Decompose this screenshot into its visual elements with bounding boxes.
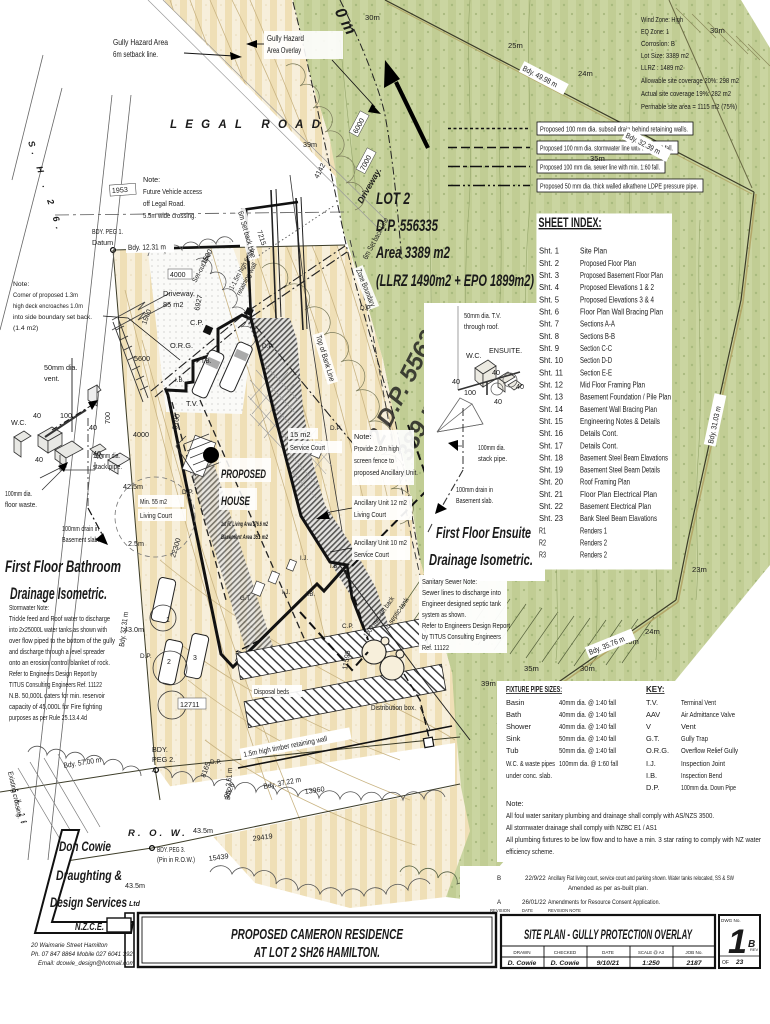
svg-text:Basement slab.: Basement slab. (62, 535, 99, 544)
svg-text:Actual site coverage 19%: 282: Actual site coverage 19%: 282 m2 (641, 89, 731, 98)
svg-text:BDY. PEG 3.: BDY. PEG 3. (157, 845, 185, 854)
svg-text:Basement Wall Bracing Plan: Basement Wall Bracing Plan (580, 405, 657, 414)
svg-text:43.0m: 43.0m (124, 625, 144, 634)
svg-text:W.C. & waste pipes: W.C. & waste pipes (506, 759, 555, 768)
svg-text:40mm dia. @ 1:40 fall: 40mm dia. @ 1:40 fall (559, 722, 616, 731)
svg-text:Refer to Engineers Design Repo: Refer to Engineers Design Report by (9, 671, 97, 678)
svg-text:23: 23 (735, 959, 744, 966)
svg-text:Gully Hazard: Gully Hazard (267, 34, 304, 43)
svg-text:50mm dia. @ 1:40 fall: 50mm dia. @ 1:40 fall (559, 746, 616, 755)
svg-text:9/10/21: 9/10/21 (597, 960, 620, 967)
svg-text:Stormwater Note:: Stormwater Note: (9, 605, 49, 612)
svg-text:into 2x25000L water tanks as s: into 2x25000L water tanks as shown with (9, 627, 107, 634)
svg-text:Sht. 14: Sht. 14 (539, 405, 564, 414)
svg-text:35m: 35m (590, 154, 605, 163)
svg-text:100mm dia.: 100mm dia. (478, 443, 505, 452)
svg-text:Sht. 16: Sht. 16 (539, 429, 564, 438)
svg-text:Sht. 18: Sht. 18 (539, 453, 564, 462)
svg-text:2: 2 (167, 659, 171, 666)
svg-text:Note:: Note: (506, 799, 524, 808)
svg-text:12711: 12711 (180, 700, 199, 709)
svg-text:O.R.G.: O.R.G. (170, 341, 193, 350)
svg-text:Amendments for Resource Consen: Amendments for Resource Consent Applicat… (548, 899, 660, 906)
svg-text:2.5m: 2.5m (128, 539, 144, 548)
svg-text:1: 1 (728, 923, 747, 961)
svg-text:50mm dia. T.V.: 50mm dia. T.V. (464, 311, 501, 320)
svg-text:50mm dia.: 50mm dia. (44, 363, 78, 372)
svg-text:N.Z.C.E.: N.Z.C.E. (75, 921, 104, 933)
svg-text:Provide 2.0m high: Provide 2.0m high (354, 444, 399, 453)
svg-text:Basement Foundation / Pile Pla: Basement Foundation / Pile Plan (580, 393, 671, 402)
svg-text:Proposed Elevations 1 & 2: Proposed Elevations 1 & 2 (580, 283, 654, 292)
svg-text:Bank Steel Beam Elavations: Bank Steel Beam Elavations (580, 514, 657, 523)
svg-text:Disposal beds: Disposal beds (254, 687, 289, 696)
svg-text:Basement Area 351 m2: Basement Area 351 m2 (221, 534, 268, 541)
svg-text:FIXTURE PIPE SIZES:: FIXTURE PIPE SIZES: (506, 685, 562, 694)
svg-text:high deck encroaches 1.0m: high deck encroaches 1.0m (13, 303, 83, 310)
svg-text:off Legal Road.: off Legal Road. (143, 199, 185, 208)
svg-text:Sht. 10: Sht. 10 (539, 356, 564, 365)
svg-text:Driveway.: Driveway. (163, 289, 195, 298)
svg-text:by TITUS Consulting Engineers: by TITUS Consulting Engineers (422, 634, 501, 641)
svg-text:Sections B-B: Sections B-B (580, 332, 615, 341)
svg-text:40mm dia. @ 1:40 fall: 40mm dia. @ 1:40 fall (559, 698, 616, 707)
svg-text:D.P.: D.P. (140, 653, 152, 660)
svg-text:Sht. 11: Sht. 11 (539, 368, 564, 377)
svg-text:REV: REV (750, 947, 759, 952)
svg-text:40: 40 (33, 411, 41, 420)
svg-text:Sht. 17: Sht. 17 (539, 441, 564, 450)
svg-text:KEY:: KEY: (646, 685, 665, 694)
svg-text:Sht. 7: Sht. 7 (539, 320, 560, 329)
svg-text:40: 40 (89, 423, 97, 432)
svg-text:Basement Steel Beam Elavations: Basement Steel Beam Elavations (580, 453, 668, 462)
svg-text:Ph. 07 847 8864 Mobile 02: Ph. 07 847 8864 Mobile 027 6041 392 (31, 952, 133, 958)
svg-text:Section E-E: Section E-E (580, 368, 612, 377)
svg-text:D.P.: D.P. (262, 343, 274, 350)
svg-text:24m: 24m (645, 627, 660, 636)
svg-text:Gully Trap: Gully Trap (681, 734, 708, 743)
svg-text:Vent: Vent (681, 722, 696, 731)
svg-text:D.P.: D.P. (360, 305, 372, 312)
svg-text:vent.: vent. (44, 374, 60, 383)
svg-text:Terminal Vent: Terminal Vent (681, 698, 716, 707)
svg-text:PROPOSED CAMERON RESIDENCE: PROPOSED CAMERON RESIDENCE (231, 926, 404, 943)
svg-text:HOUSE: HOUSE (221, 494, 251, 508)
svg-text:Roof Framing Plan: Roof Framing Plan (580, 478, 630, 487)
svg-text:Ancillary Flat living court, s: Ancillary Flat living court, service cou… (548, 875, 734, 882)
svg-text:1st Fl. Living Area 376.6 m2: 1st Fl. Living Area 376.6 m2 (221, 521, 268, 528)
svg-text:All plumbing fixtures to be lo: All plumbing fixtures to be low flow and… (506, 835, 761, 844)
svg-text:Allowable site coverage 20%: 2: Allowable site coverage 20%: 298 m2 (641, 76, 739, 85)
svg-text:Sht. 12: Sht. 12 (539, 381, 564, 390)
svg-text:AT LOT 2 SH26 HAMILTON.: AT LOT 2 SH26 HAMILTON. (253, 944, 380, 961)
svg-text:4000: 4000 (133, 430, 149, 439)
svg-text:43.5m: 43.5m (193, 826, 213, 835)
svg-text:AAV: AAV (646, 710, 660, 719)
svg-text:Details Cont.: Details Cont. (580, 429, 618, 438)
svg-text:Engineer designed septic tank: Engineer designed septic tank (422, 601, 501, 608)
svg-text:TITUS Consulting Engineers Ref: TITUS Consulting Engineers Ref. 11122 (9, 682, 102, 689)
svg-text:Sewer lines to discharge into: Sewer lines to discharge into (422, 590, 501, 597)
svg-text:proposed Ancillary Unit.: proposed Ancillary Unit. (354, 468, 418, 477)
svg-text:Sanitary Sewer Note:: Sanitary Sewer Note: (422, 579, 477, 586)
svg-text:Sections A-A: Sections A-A (580, 320, 615, 329)
svg-text:Sht. 19: Sht. 19 (539, 466, 564, 475)
svg-text:C.P.: C.P. (342, 623, 354, 630)
svg-text:Sht. 15: Sht. 15 (539, 417, 564, 426)
svg-text:I.B.: I.B. (330, 564, 339, 570)
svg-text:BDY.: BDY. (152, 745, 168, 754)
svg-text:Proposed 50 mm dia. thick wall: Proposed 50 mm dia. thick walled alkathe… (540, 182, 698, 191)
svg-text:I.B.: I.B. (175, 377, 185, 384)
svg-text:stack pipe.: stack pipe. (93, 462, 122, 471)
svg-text:Sht. 3: Sht. 3 (539, 271, 560, 280)
svg-text:1:250: 1:250 (642, 960, 660, 967)
svg-text:Wind Zone: High: Wind Zone: High (641, 15, 683, 24)
svg-text:Air Admittance Valve: Air Admittance Valve (681, 710, 735, 719)
svg-text:R3: R3 (539, 551, 546, 560)
svg-text:Bath: Bath (506, 710, 521, 719)
svg-text:Section D-D: Section D-D (580, 356, 612, 365)
svg-text:I.J.: I.J. (282, 590, 290, 596)
svg-text:100: 100 (60, 411, 72, 420)
svg-text:Drainage Isometric.: Drainage Isometric. (10, 584, 107, 603)
svg-text:Sht. 21: Sht. 21 (539, 490, 564, 499)
svg-text:40: 40 (516, 382, 524, 391)
svg-text:JOB No.: JOB No. (685, 950, 702, 955)
svg-text:Renders 1: Renders 1 (580, 526, 607, 535)
svg-text:39m: 39m (303, 140, 317, 149)
svg-text:B: B (497, 875, 501, 882)
svg-text:Draughting &: Draughting & (56, 867, 122, 883)
svg-text:42.5m: 42.5m (123, 482, 143, 491)
svg-text:40: 40 (494, 397, 502, 406)
svg-text:5.5m wide crossing.: 5.5m wide crossing. (143, 211, 196, 220)
svg-text:Sink: Sink (506, 734, 521, 743)
svg-text:D.P.: D.P. (182, 489, 194, 496)
svg-text:40mm dia. @ 1:40 fall: 40mm dia. @ 1:40 fall (559, 710, 616, 719)
svg-text:I.B.: I.B. (202, 358, 212, 365)
svg-text:W.C.: W.C. (466, 351, 482, 360)
svg-text:Sht. 5: Sht. 5 (539, 295, 560, 304)
svg-text:Area Overlay: Area Overlay (267, 46, 301, 55)
svg-text:Details Cont.: Details Cont. (580, 441, 618, 450)
svg-text:Proposed 100 mm dia. subsoil d: Proposed 100 mm dia. subsoil drain behin… (540, 125, 688, 134)
svg-text:Basement Electrical Plan: Basement Electrical Plan (580, 502, 651, 511)
svg-text:D. Cowie: D. Cowie (551, 960, 580, 967)
svg-text:R. O. W.: R. O. W. (128, 828, 188, 839)
svg-text:and discharge through a level: and discharge through a level spreader (9, 649, 106, 656)
svg-text:Living Court: Living Court (140, 511, 172, 520)
svg-text:100mm dia.: 100mm dia. (93, 451, 120, 460)
svg-text:Sht. 9: Sht. 9 (539, 344, 560, 353)
svg-text:T.V.: T.V. (646, 698, 658, 707)
svg-text:Mid Floor Framing Plan: Mid Floor Framing Plan (580, 381, 645, 390)
svg-text:Service Court: Service Court (290, 443, 325, 452)
svg-text:6m setback line.: 6m setback line. (113, 50, 158, 59)
svg-text:Sht. 20: Sht. 20 (539, 478, 564, 487)
svg-text:Permable site area = 1115 m2 (: Permable site area = 1115 m2 (75%) (641, 102, 737, 111)
svg-text:Area 3389 m2: Area 3389 m2 (375, 243, 450, 262)
svg-text:All stormwater drainage shall: All stormwater drainage shall comply wit… (506, 823, 657, 832)
svg-text:Design Services: Design Services (50, 894, 127, 910)
svg-text:24m: 24m (578, 69, 593, 78)
svg-text:100mm drain in: 100mm drain in (62, 524, 99, 533)
svg-text:100mm dia. Down Pipe: 100mm dia. Down Pipe (681, 783, 736, 792)
svg-text:PEG 2.: PEG 2. (152, 755, 175, 764)
svg-text:20 Waimarie Street Hamilto: 20 Waimarie Street Hamilton (30, 943, 108, 949)
svg-text:40: 40 (35, 455, 43, 464)
svg-text:Datum: Datum (92, 238, 113, 247)
svg-text:30m: 30m (710, 26, 725, 35)
svg-text:T.V.: T.V. (186, 399, 198, 408)
svg-text:LOT 2: LOT 2 (376, 189, 410, 208)
svg-text:Corner of proposed 1.3m: Corner of proposed 1.3m (13, 292, 78, 299)
svg-text:purposes as per Rule 25.13.4.4: purposes as per Rule 25.13.4.4d (9, 715, 87, 722)
svg-text:ENSUITE.: ENSUITE. (489, 346, 522, 355)
svg-text:Don Cowie: Don Cowie (59, 838, 111, 854)
svg-text:43.5m: 43.5m (125, 881, 145, 890)
svg-text:Ref. 11122: Ref. 11122 (422, 645, 449, 652)
svg-text:SITE PLAN - GULLY PROTECTION O: SITE PLAN - GULLY PROTECTION OVERLAY (524, 927, 693, 942)
svg-text:(LLRZ 1490m2 + EPO 1899m2): (LLRZ 1490m2 + EPO 1899m2) (376, 271, 534, 290)
svg-text:under conc. slab.: under conc. slab. (506, 771, 552, 780)
svg-text:700: 700 (103, 412, 112, 424)
svg-text:4000: 4000 (170, 272, 186, 279)
svg-text:Ltd: Ltd (129, 901, 141, 908)
svg-text:Trickle feed and Roof water to: Trickle feed and Roof water to discharge (9, 616, 110, 623)
svg-text:over flow piped to the bottom: over flow piped to the bottom of the gul… (9, 638, 115, 645)
svg-text:LLRZ : 1489 m2: LLRZ : 1489 m2 (641, 63, 683, 72)
svg-text:Sht. 1: Sht. 1 (539, 247, 560, 256)
svg-text:W.C.: W.C. (11, 418, 27, 427)
svg-text:Inspection Bend: Inspection Bend (681, 771, 722, 780)
svg-text:First Floor Bathroom: First Floor Bathroom (5, 557, 121, 576)
svg-text:Basin: Basin (506, 698, 525, 707)
svg-text:Note:: Note: (143, 175, 160, 184)
svg-text:100mm drain in: 100mm drain in (456, 485, 493, 494)
svg-text:15 m2: 15 m2 (290, 430, 311, 439)
svg-text:capacity of 45,000L for Fire f: capacity of 45,000L for Fire fighting (9, 704, 102, 711)
svg-text:Distribution box.: Distribution box. (371, 703, 416, 712)
svg-text:Overflow Relief Gully: Overflow Relief Gully (681, 746, 738, 755)
svg-text:Min. 55 m2: Min. 55 m2 (140, 497, 167, 506)
svg-text:Living Court: Living Court (354, 510, 386, 519)
svg-text:Amended as per as-built plan.: Amended as per as-built plan. (568, 885, 648, 892)
svg-text:Gully Hazard Area: Gully Hazard Area (113, 38, 169, 47)
svg-text:D. Cowie: D. Cowie (508, 960, 537, 967)
svg-text:OF: OF (722, 960, 729, 966)
svg-text:Proposed 100 mm dia. sewer lin: Proposed 100 mm dia. sewer line with min… (540, 163, 660, 172)
svg-text:Renders 2: Renders 2 (580, 539, 607, 548)
svg-text:30m: 30m (580, 664, 595, 673)
svg-text:1: 1 (166, 617, 170, 624)
svg-text:Corrosion: B: Corrosion: B (641, 39, 675, 48)
svg-text:5600: 5600 (134, 354, 150, 363)
svg-text:40: 40 (452, 377, 460, 386)
svg-text:Basement slab.: Basement slab. (456, 496, 493, 505)
svg-text:Sht. 22: Sht. 22 (539, 502, 564, 511)
svg-text:25m: 25m (508, 41, 523, 50)
svg-text:I.B.: I.B. (646, 771, 657, 780)
svg-text:G.T.: G.T. (240, 596, 251, 602)
svg-text:Sht. 2: Sht. 2 (539, 259, 560, 268)
svg-text:Sht. 6: Sht. 6 (539, 308, 560, 317)
svg-text:Email: dcowie_design@hotmail.: Email: dcowie_design@hotmail.com (38, 961, 134, 967)
svg-text:screen fence to: screen fence to (354, 456, 394, 465)
svg-text:N.B. 50,000L caters for min. r: N.B. 50,000L caters for min. reservoir (9, 693, 106, 700)
svg-text:stack pipe.: stack pipe. (478, 454, 507, 463)
svg-text:Ancillary Unit 12 m2: Ancillary Unit 12 m2 (354, 498, 407, 507)
svg-text:Engineering Notes & Details: Engineering Notes & Details (580, 417, 660, 426)
svg-text:Inspection Joint: Inspection Joint (681, 759, 725, 768)
svg-text:DRAWN: DRAWN (513, 950, 530, 955)
svg-text:(Pin in R.O.W.): (Pin in R.O.W.) (157, 855, 195, 864)
svg-text:DATE: DATE (522, 908, 533, 913)
svg-text:Sht. 23: Sht. 23 (539, 514, 564, 523)
svg-text:I.J.: I.J. (646, 759, 656, 768)
svg-text:PROPOSED: PROPOSED (221, 467, 266, 481)
svg-text:EQ Zone: 1: EQ Zone: 1 (641, 27, 669, 36)
svg-text:through roof.: through roof. (464, 322, 499, 331)
svg-text:Ancillary Unit 10 m2: Ancillary Unit 10 m2 (354, 538, 407, 547)
svg-text:DATE: DATE (602, 950, 614, 955)
svg-text:2187: 2187 (685, 960, 702, 967)
svg-text:efficiency scheme.: efficiency scheme. (506, 847, 554, 856)
svg-text:Renders 2: Renders 2 (580, 551, 607, 560)
svg-text:O.R.G.: O.R.G. (646, 746, 669, 755)
svg-text:onto an erosion control blanke: onto an erosion control blanket of rock. (9, 660, 110, 667)
svg-text:Drainage Isometric.: Drainage Isometric. (429, 552, 533, 569)
svg-text:Lot Size: 3389 m2: Lot Size: 3389 m2 (641, 51, 689, 60)
svg-text:Refer to Engineers Design Repo: Refer to Engineers Design Report (422, 623, 510, 630)
svg-text:R1: R1 (539, 526, 546, 535)
svg-text:85 m2: 85 m2 (163, 300, 184, 309)
svg-text:Proposed Basement Floor Plan: Proposed Basement Floor Plan (580, 271, 663, 280)
svg-text:39m: 39m (481, 679, 496, 688)
svg-text:Note:: Note: (354, 432, 371, 441)
svg-text:3: 3 (193, 655, 197, 662)
svg-text:23m: 23m (692, 565, 707, 574)
svg-text:Bdy. 12.31 m: Bdy. 12.31 m (128, 242, 166, 252)
svg-text:R2: R2 (539, 539, 546, 548)
svg-text:35m: 35m (524, 664, 539, 673)
svg-text:Note:: Note: (13, 281, 29, 288)
svg-text:Tub: Tub (506, 746, 518, 755)
svg-text:D.P.: D.P. (330, 425, 342, 432)
svg-text:(1.4 m2): (1.4 m2) (13, 325, 38, 332)
svg-text:SCALE @ A3: SCALE @ A3 (638, 950, 664, 955)
svg-text:Shower: Shower (506, 722, 532, 731)
svg-text:G.T.: G.T. (646, 734, 660, 743)
svg-text:30m: 30m (365, 13, 380, 22)
svg-text:Sht. 4: Sht. 4 (539, 283, 560, 292)
svg-text:D.P.: D.P. (646, 783, 659, 792)
svg-text:Site Plan: Site Plan (580, 247, 607, 256)
svg-text:Sht. 8: Sht. 8 (539, 332, 560, 341)
svg-text:CHECKED: CHECKED (554, 950, 577, 955)
svg-text:system as shown.: system as shown. (422, 612, 466, 619)
svg-text:Proposed Floor Plan: Proposed Floor Plan (580, 259, 636, 268)
svg-text:V: V (646, 722, 651, 731)
svg-text:into side boundary set back.: into side boundary set back. (13, 314, 92, 321)
svg-text:Floor Plan Wall Bracing Plan: Floor Plan Wall Bracing Plan (580, 308, 663, 317)
svg-text:Section C-C: Section C-C (580, 344, 612, 353)
svg-text:Basement Steel Beam Details: Basement Steel Beam Details (580, 466, 660, 475)
svg-text:SHEET INDEX:: SHEET INDEX: (539, 214, 602, 230)
svg-text:floor waste.: floor waste. (5, 500, 37, 509)
svg-text:I.J.: I.J. (300, 556, 308, 562)
svg-text:26/01/22: 26/01/22 (522, 899, 547, 906)
svg-text:All foul water sanitary plumbi: All foul water sanitary plumbing and dra… (506, 811, 714, 820)
svg-text:1953: 1953 (112, 185, 129, 195)
svg-text:Floor Plan Electrical Plan: Floor Plan Electrical Plan (580, 490, 657, 499)
svg-text:100mm dia.: 100mm dia. (5, 489, 32, 498)
svg-text:C.P.: C.P. (190, 318, 203, 327)
svg-text:Service Court: Service Court (354, 550, 389, 559)
svg-text:100: 100 (464, 388, 476, 397)
svg-text:Proposed Elevations 3 & 4: Proposed Elevations 3 & 4 (580, 295, 654, 304)
svg-text:First Floor Ensuite: First Floor Ensuite (436, 525, 531, 542)
svg-text:100mm dia. @ 1:60 fall: 100mm dia. @ 1:60 fall (559, 759, 618, 768)
svg-text:22/9/22: 22/9/22 (525, 875, 546, 882)
svg-text:BDY. PEG 1.: BDY. PEG 1. (92, 227, 123, 236)
svg-text:REVISION NOTE: REVISION NOTE (548, 908, 581, 913)
svg-text:Future Vehicle access: Future Vehicle access (143, 187, 202, 196)
svg-text:40: 40 (492, 368, 500, 377)
svg-text:D.P.: D.P. (210, 759, 222, 766)
svg-text:50mm dia. @ 1:40 fall: 50mm dia. @ 1:40 fall (559, 734, 616, 743)
svg-text:I.B.: I.B. (306, 592, 315, 598)
svg-text:Sht. 13: Sht. 13 (539, 393, 564, 402)
